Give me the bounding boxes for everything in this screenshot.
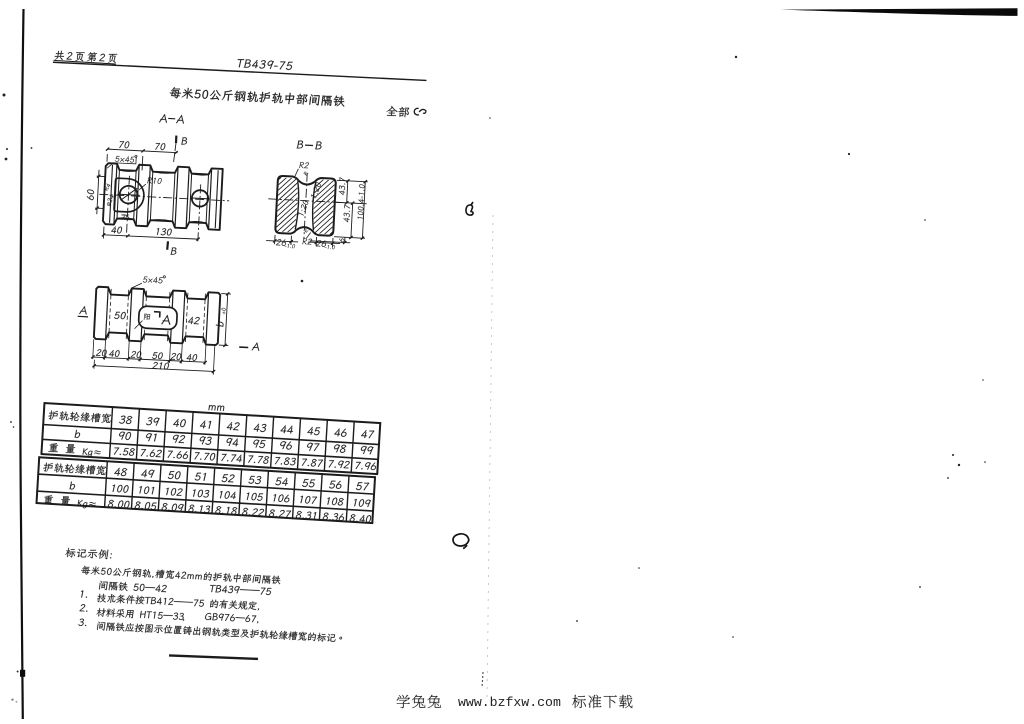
svg-text:www.bzfxw.com: www.bzfxw.com	[458, 695, 561, 710]
